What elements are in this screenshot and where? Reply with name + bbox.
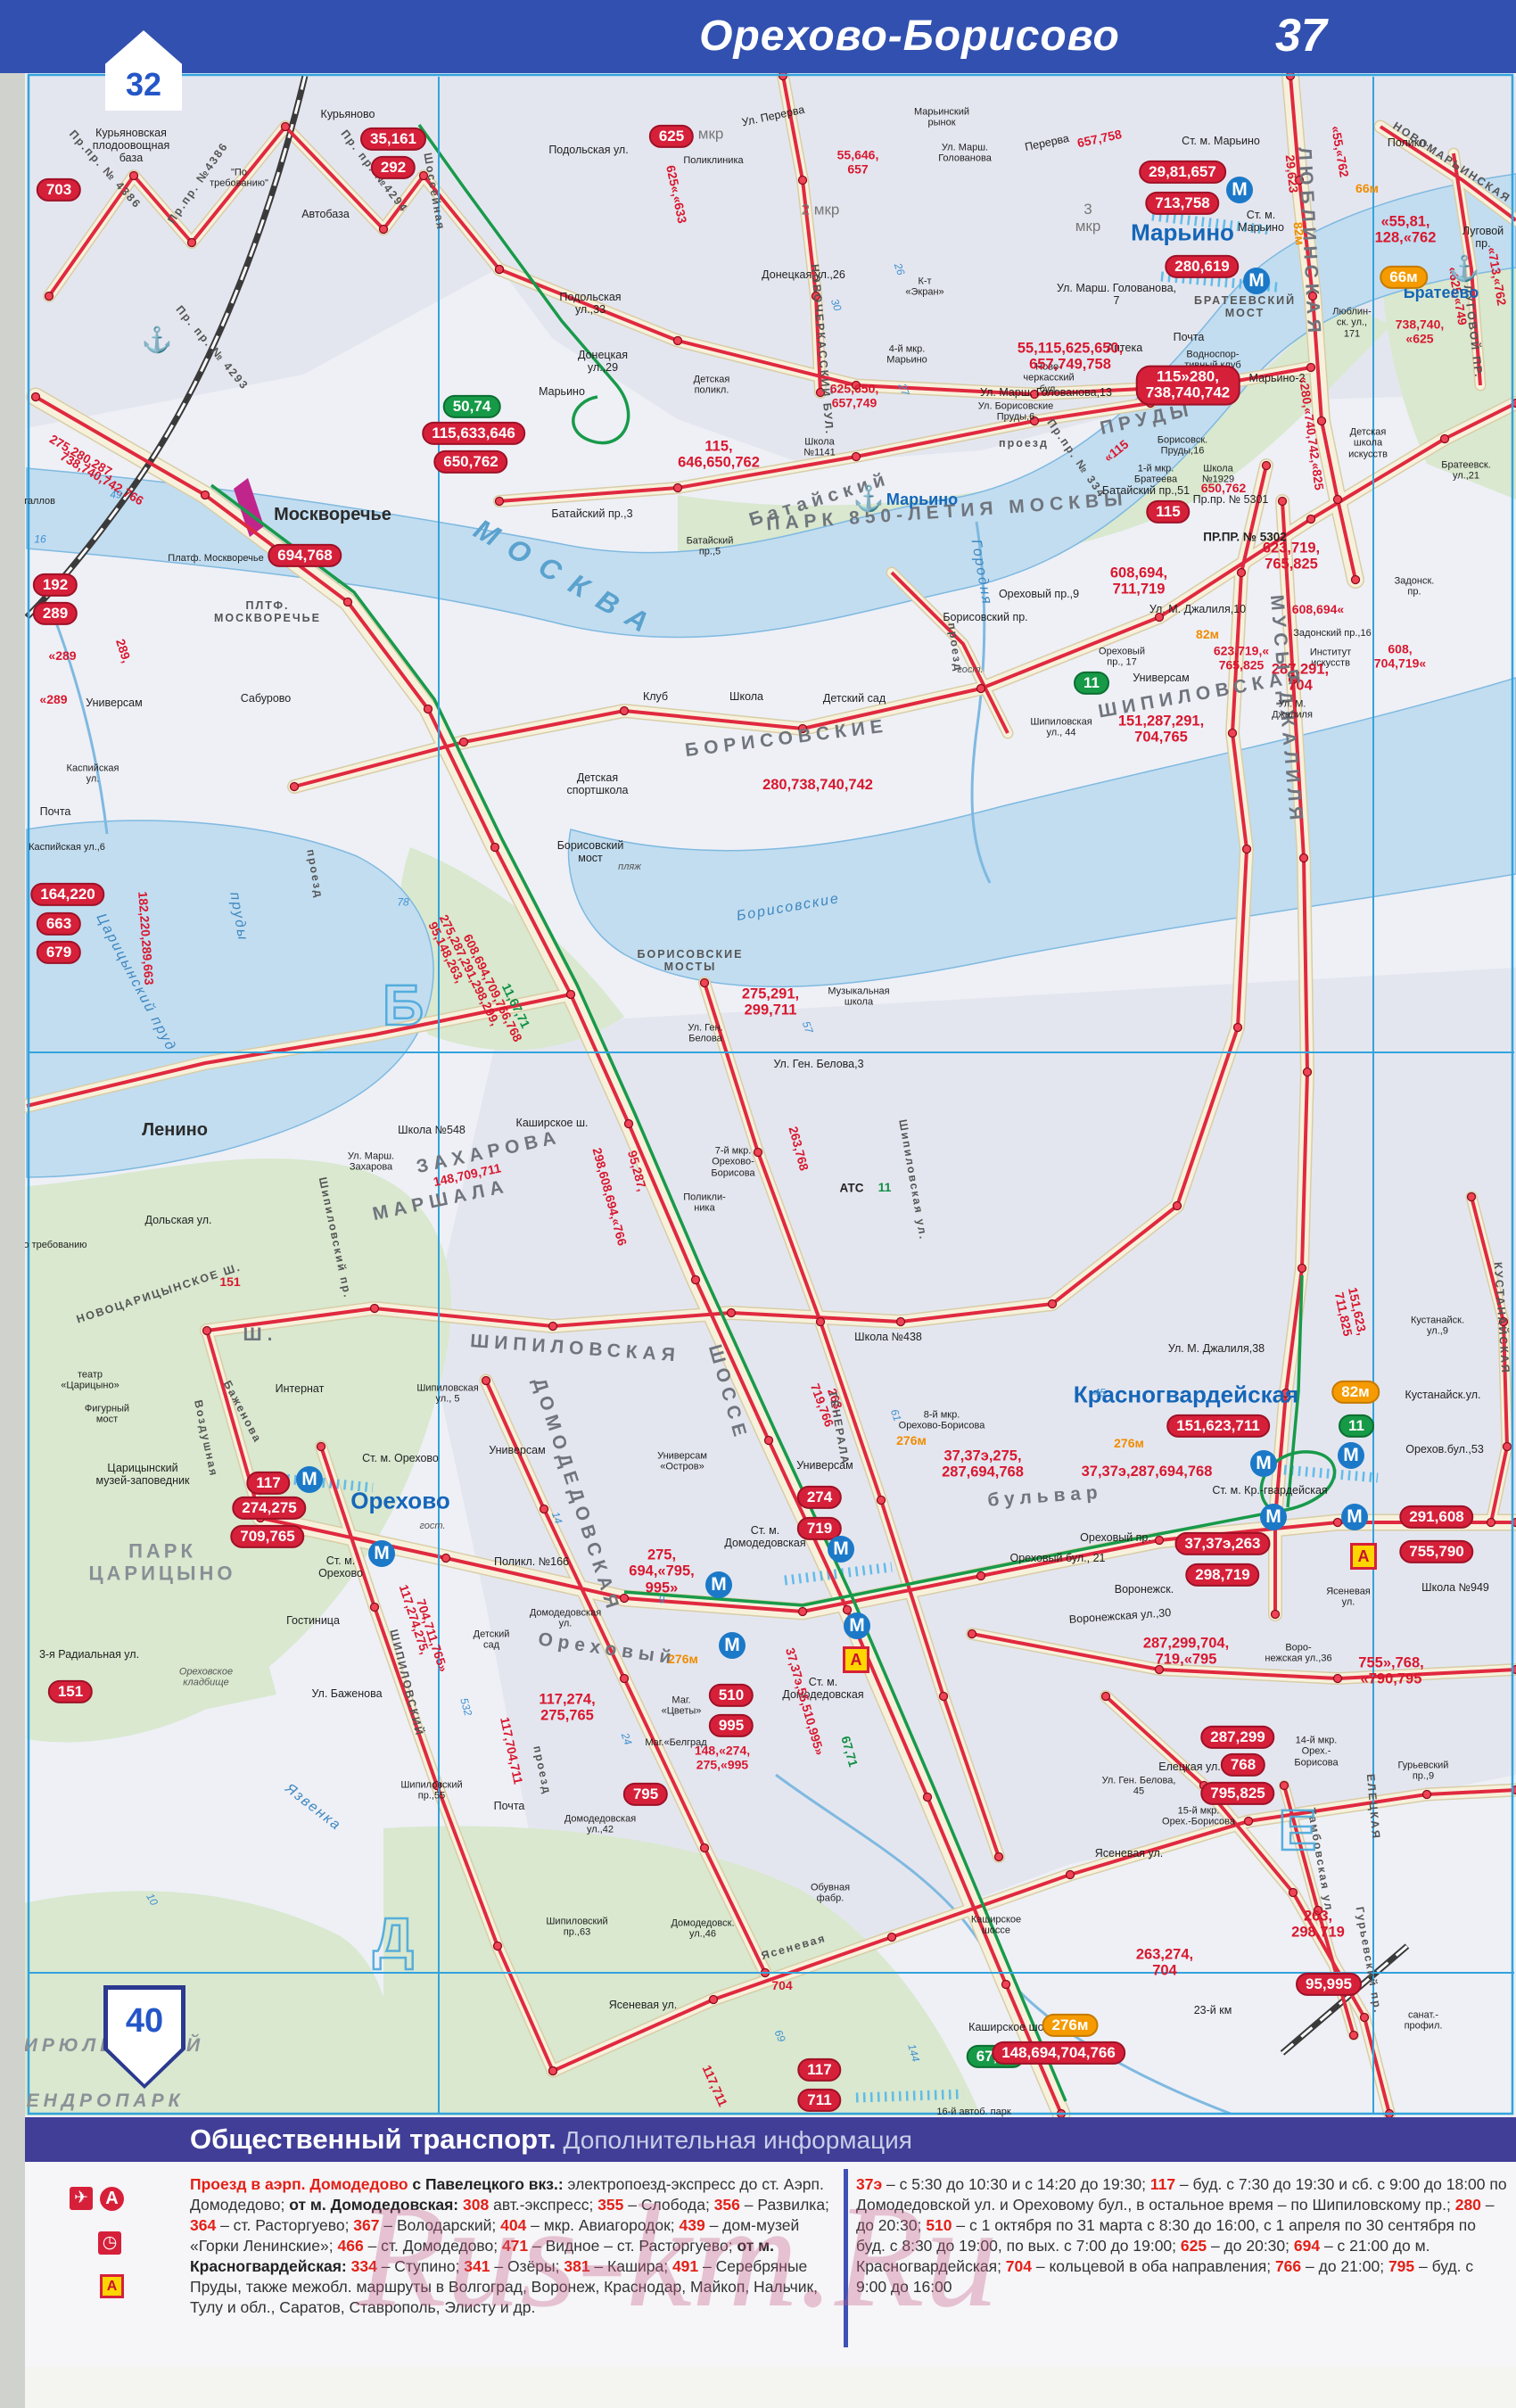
metro-station-icon: М bbox=[368, 1540, 395, 1567]
grid-letter: Б bbox=[383, 972, 424, 1038]
map-label: 37,37э,287,694,768 bbox=[1082, 1464, 1213, 1480]
grid-letter: Е bbox=[1279, 1797, 1317, 1863]
transit-info-text: 364 bbox=[190, 2216, 216, 2234]
route-badge: 291,608 bbox=[1399, 1505, 1473, 1529]
transit-info-text: 766 bbox=[1275, 2257, 1301, 2275]
map-label: 45 bbox=[1093, 1387, 1105, 1398]
map-label: Школа №949 bbox=[1421, 1581, 1489, 1594]
map-label: Задонск. пр. bbox=[1395, 576, 1435, 598]
metro-station-icon: М bbox=[1260, 1504, 1287, 1530]
map-label: Ореховый пр., 17 bbox=[1099, 647, 1145, 669]
map-label: Красногвардейская bbox=[1074, 1381, 1298, 1407]
map-label: "По требованию" bbox=[210, 168, 268, 190]
map-label: Ясеневая ул. bbox=[609, 1999, 678, 2011]
route-badge: 289 bbox=[33, 602, 78, 625]
map-label: 2 мкр bbox=[802, 201, 840, 218]
map-label: Ясеневая ул. bbox=[1326, 1587, 1371, 1609]
route-badge: 663 bbox=[37, 912, 81, 936]
transit-info-text: – Ступино; bbox=[377, 2257, 464, 2275]
transit-info-text: – Видное – ст. Расторгуево; bbox=[528, 2237, 737, 2255]
page-header: Орехово-Борисово 37 bbox=[0, 0, 1516, 73]
map-label: «55,81, 128,«762 bbox=[1375, 214, 1437, 247]
route-badge: 713,758 bbox=[1145, 192, 1219, 215]
transit-info-text: 308 bbox=[463, 2196, 489, 2214]
map-label: Орехов.бул.,53 bbox=[1405, 1443, 1484, 1456]
map-label: Братеевск. ул.,21 bbox=[1441, 460, 1490, 482]
map-label: 276м bbox=[1114, 1437, 1144, 1451]
map-label: Платф. Москворечье bbox=[168, 553, 263, 564]
map-label: проезд bbox=[999, 437, 1049, 449]
map-label: Фигурный мост bbox=[85, 1404, 129, 1426]
map-label: АТС bbox=[839, 1181, 863, 1194]
map-label: 608, 704,719« bbox=[1374, 642, 1426, 670]
route-badge: 679 bbox=[37, 941, 81, 964]
transit-info-text: 355 bbox=[597, 2196, 623, 2214]
map-label: Воро- нежская ул.,36 bbox=[1265, 1643, 1331, 1665]
map-label: Дольская ул. bbox=[144, 1214, 211, 1226]
map-label: 14-й мкр. Орех.- Борисова bbox=[1294, 1736, 1338, 1769]
clock-icon: ◷ bbox=[98, 2231, 121, 2255]
route-badge: 37,37э,263 bbox=[1174, 1532, 1270, 1555]
route-badge: 287,299 bbox=[1200, 1726, 1274, 1749]
map-label: Шипиловская ул., 44 bbox=[1030, 717, 1092, 739]
map-label: Батайский пр.,5 bbox=[687, 536, 734, 558]
transit-info-text: – кольцевой в оба направления; bbox=[1032, 2257, 1275, 2275]
metro-station-icon: М bbox=[844, 1612, 870, 1639]
map-label: 263, 298,719 bbox=[1291, 1909, 1345, 1942]
transit-info-text: 404 bbox=[500, 2216, 526, 2234]
page-title: Орехово-Борисово bbox=[571, 7, 1248, 66]
route-badge: 192 bbox=[33, 573, 78, 597]
transit-info-text: – Развилка; bbox=[740, 2196, 829, 2214]
map-label: Детская спортшкола bbox=[567, 771, 629, 796]
map-label: гост. bbox=[957, 664, 983, 675]
map-label: 37,37э,275, 287,694,768 bbox=[942, 1448, 1024, 1481]
map-label: 11 bbox=[878, 1181, 892, 1195]
map-label: Поликли- ника bbox=[683, 1192, 726, 1215]
map-label: Гурьевский пр.,9 bbox=[1398, 1761, 1449, 1783]
map-label: БРАТЕЕВСКИЙ МОСТ bbox=[1194, 294, 1296, 319]
transit-info-left-column: Проезд в аэрп. Домодедово с Павелецкого … bbox=[190, 2174, 845, 2318]
map-label: Ул. М. Джалиля,10 bbox=[1149, 603, 1246, 615]
transit-info-text: – Кашира; bbox=[590, 2257, 672, 2275]
map-label: Школа №438 bbox=[854, 1331, 922, 1343]
map-label: ПАРК ЦАРИЦЫНО bbox=[88, 1540, 235, 1584]
transit-info-text: – Володарский; bbox=[380, 2216, 501, 2234]
route-badge: 151,623,711 bbox=[1166, 1414, 1270, 1438]
map-label: 16 bbox=[34, 533, 45, 545]
map-label: 608,694, 711,719 bbox=[1110, 565, 1167, 598]
route-badge: 117 bbox=[246, 1472, 290, 1495]
map-label: Универсам bbox=[86, 697, 142, 709]
route-badge: 795,825 bbox=[1200, 1782, 1274, 1805]
route-badge: 35,161 bbox=[360, 128, 426, 151]
transit-info-text: 117 bbox=[1150, 2175, 1175, 2193]
map-label: Шипиловская ул., 5 bbox=[416, 1383, 478, 1406]
transit-info-text: – ст. Домодедово; bbox=[364, 2237, 502, 2255]
map-label: Ореховый бул., 21 bbox=[1010, 1552, 1106, 1564]
transit-info-text: 625 bbox=[1181, 2237, 1207, 2255]
map-label: Ул. Борисовские Пруды,6 bbox=[978, 401, 1053, 424]
map-label: Гостиница bbox=[286, 1614, 340, 1627]
map-label: Школа №1929 bbox=[1202, 464, 1234, 486]
metro-station-icon: М bbox=[1341, 1504, 1368, 1530]
map-label: Шипиловский пр.,63 bbox=[546, 1917, 607, 1939]
bus-terminal-icon: А bbox=[1350, 1543, 1377, 1570]
map-label: 275, 694,«795, 995» bbox=[629, 1546, 694, 1596]
route-badge: 703 bbox=[37, 178, 81, 202]
transit-info-text: 341 bbox=[464, 2257, 490, 2275]
transit-info-text: 381 bbox=[564, 2257, 589, 2275]
map-label: Клуб bbox=[643, 690, 668, 703]
map-label: пляж bbox=[618, 862, 641, 872]
map-label: Ул. Ген. Белова,3 bbox=[773, 1058, 863, 1070]
map-label: 275,291, 299,711 bbox=[742, 986, 799, 1019]
route-badge: 795 bbox=[623, 1783, 668, 1806]
map-label: Ул. Ген. Белова bbox=[688, 1023, 722, 1045]
map-label: ДЕНДРОПАРК bbox=[8, 2091, 184, 2112]
transit-info-text: – Слобода; bbox=[623, 2196, 713, 2214]
route-badge: 510 bbox=[709, 1684, 754, 1707]
route-badge: 625 bbox=[649, 125, 694, 148]
map-label: 704 bbox=[771, 1979, 792, 1993]
adjacent-page-number-bottom: 40 bbox=[108, 2002, 181, 2041]
transit-info-text: – до 20:30; bbox=[1207, 2237, 1294, 2255]
map-label: Маг. «Цветы» bbox=[662, 1695, 702, 1718]
airplane-icon: ✈ bbox=[70, 2187, 93, 2210]
map-label: 608,694« bbox=[1292, 603, 1344, 617]
route-badge: 768 bbox=[1221, 1753, 1265, 1777]
map-label: 623,719, 765,825 bbox=[1263, 540, 1320, 573]
page-left-margin bbox=[0, 0, 25, 2408]
map-label: Воронежск. bbox=[1115, 1583, 1174, 1596]
route-badge: 117 bbox=[797, 2058, 841, 2082]
map-label: Музыкальная школа bbox=[828, 986, 889, 1009]
transit-info-text: 466 bbox=[338, 2237, 364, 2255]
metro-station-icon: М bbox=[1338, 1442, 1364, 1469]
map-label: Интернат bbox=[276, 1382, 325, 1395]
map-label: Орехово bbox=[350, 1488, 449, 1513]
map-label: 15-й мкр. Орех.-Борисова bbox=[1162, 1806, 1235, 1828]
route-badge: 82м bbox=[1331, 1381, 1380, 1404]
map-label: Школа №548 bbox=[398, 1124, 466, 1136]
map-label: Ясеневая ул. bbox=[1095, 1847, 1164, 1860]
transit-info-subtitle: Дополнительная информация bbox=[556, 2126, 912, 2154]
map-label: санат.- профил. bbox=[1405, 2010, 1443, 2033]
transit-info-text: 491 bbox=[672, 2257, 698, 2275]
route-badge: 995 bbox=[709, 1714, 754, 1737]
route-badge: 292 bbox=[371, 156, 416, 179]
map-label: Подольская ул.,33 bbox=[559, 291, 621, 316]
map-label: Каширское шоссе bbox=[971, 1915, 1021, 1937]
route-badge: 274,275 bbox=[232, 1497, 306, 1520]
map-label: Подольская ул. bbox=[548, 144, 628, 156]
map-label: 23-й км bbox=[1194, 2004, 1232, 2016]
map-label: 7-й мкр. Орехово- Борисова bbox=[711, 1146, 754, 1179]
metro-station-icon: М bbox=[1243, 268, 1270, 294]
transit-info-text: – ст. Расторгуево; bbox=[216, 2216, 353, 2234]
map-label: 151,287,291, 704,765 bbox=[1118, 713, 1204, 746]
map-label: Автобаза bbox=[301, 208, 350, 220]
map-label: Царицынский музей-заповедник bbox=[96, 1462, 190, 1487]
route-badge: 694,768 bbox=[268, 544, 342, 567]
column-divider bbox=[844, 2169, 848, 2347]
transit-info-title: Общественный транспорт. bbox=[190, 2123, 556, 2155]
route-badge: 298,719 bbox=[1185, 1563, 1259, 1587]
transit-info-text: 367 bbox=[353, 2216, 379, 2234]
map-label: Борисовский мост bbox=[557, 839, 624, 864]
route-badge: 164,220 bbox=[30, 883, 104, 906]
transit-info-text: – до 21:00; bbox=[1301, 2257, 1388, 2275]
map-label: Школа bbox=[729, 690, 763, 703]
map-label: 82м bbox=[1196, 628, 1219, 642]
map-label: Донецкая ул.,29 bbox=[578, 349, 628, 374]
map-label: 55,115,625,650, 657,749,758 bbox=[1018, 341, 1123, 374]
map-label: 287,299,704, 719,«795 bbox=[1143, 1636, 1229, 1669]
map-label: 9 bbox=[659, 1594, 665, 1605]
map-label: Почта bbox=[40, 805, 71, 818]
route-badge: 11 bbox=[1339, 1414, 1374, 1438]
map-label: Сабурово bbox=[241, 692, 291, 705]
map-label: Ст. м. Домодедовская bbox=[724, 1524, 805, 1549]
map-label: 55,646, 657 bbox=[837, 148, 879, 176]
route-badge: 50,74 bbox=[443, 395, 501, 418]
map-label: Ул. Марш. Захарова bbox=[348, 1151, 394, 1174]
map-label: Ст. м. Кр.-гвардейская bbox=[1212, 1484, 1327, 1497]
route-badge: 115 bbox=[1146, 500, 1190, 524]
transit-info-text: – с 5:30 до 10:30 и с 14:20 до 19:30; bbox=[882, 2175, 1150, 2193]
map-label: Домодедовская ул.,42 bbox=[564, 1814, 636, 1836]
map-label: Ш. bbox=[243, 1324, 278, 1346]
map-label: 29,623 bbox=[1282, 154, 1300, 194]
transit-info-text: 694 bbox=[1294, 2237, 1320, 2255]
map-label: Ст. м. Марьино bbox=[1182, 135, 1260, 147]
map-label: Детская школа искусств bbox=[1348, 427, 1388, 460]
map-label: Задонский пр.,16 bbox=[1293, 628, 1371, 639]
map-label: 280,738,740,742 bbox=[762, 777, 873, 793]
map-label: Марьино bbox=[886, 491, 958, 508]
map-label: Ореховское кладбище bbox=[179, 1667, 233, 1689]
map-label: Марьино bbox=[1131, 219, 1234, 245]
map-label: Каспийская ул.,6 bbox=[29, 842, 105, 853]
map-label: Детская поликл. bbox=[694, 375, 730, 397]
map-label: Ул. Ген. Белова, 45 bbox=[1102, 1776, 1176, 1798]
map-label: Елецкая ул. bbox=[1158, 1761, 1220, 1773]
map-label: Универсам «Остров» bbox=[657, 1451, 707, 1473]
transit-info-text: 471 bbox=[502, 2237, 528, 2255]
transit-info-text: 510 bbox=[926, 2216, 952, 2234]
map-label: Ореховый пр.,9 bbox=[999, 588, 1079, 600]
map-label: 117,274, 275,765 bbox=[539, 1692, 595, 1725]
map-label: Поликл. №166 bbox=[494, 1555, 569, 1568]
map-label: Москворечье bbox=[274, 505, 391, 524]
map-label: 263,274, 704 bbox=[1136, 1947, 1193, 1980]
bus-terminal-a-icon: А bbox=[100, 2187, 124, 2211]
route-badge: 115»280, 738,740,742 bbox=[1136, 366, 1240, 406]
map-label: Почта bbox=[1174, 331, 1205, 343]
transit-info-text: 439 bbox=[680, 2216, 705, 2234]
map-label: 4-й мкр. Марьино bbox=[886, 344, 927, 367]
metro-station-icon: М bbox=[719, 1632, 746, 1659]
metro-station-icon: М bbox=[705, 1571, 732, 1598]
metro-station-icon: М bbox=[296, 1466, 323, 1493]
map-label: 78 bbox=[397, 896, 408, 908]
page-number: 37 bbox=[1275, 5, 1327, 66]
route-badge: 66м bbox=[1380, 266, 1428, 289]
map-label: 276м bbox=[896, 1434, 927, 1448]
transit-info-text: 334 bbox=[351, 2257, 377, 2275]
route-badge: 709,765 bbox=[230, 1525, 304, 1548]
map-canvas: Курьяновская плодоовощная базаПр.пр. № 4… bbox=[0, 0, 1516, 2117]
map-label: Ленино bbox=[142, 1120, 208, 1140]
map-label: Ул. М. Джалиля,38 bbox=[1168, 1342, 1265, 1355]
map-label: 66м bbox=[1355, 182, 1379, 196]
map-label: Ореховый пр. bbox=[1080, 1531, 1151, 1544]
map-label: 148,«274, 275,«995 bbox=[695, 1744, 750, 1771]
route-badge: 276м bbox=[1042, 2014, 1099, 2037]
map-label: К-т «Экран» bbox=[905, 276, 943, 299]
map-label: Каспийская ул. bbox=[67, 763, 119, 786]
route-badge: 29,81,657 bbox=[1139, 161, 1226, 184]
route-badge: 148,694,704,766 bbox=[992, 2041, 1125, 2065]
map-label: Обувная фабр. bbox=[811, 1883, 850, 1905]
map-label: театр «Царицыно» bbox=[61, 1370, 119, 1392]
map-label: Донецкая ул.,26 bbox=[762, 268, 845, 281]
transit-info-text: 704 bbox=[1006, 2257, 1032, 2275]
map-label: Шипиловский пр.,55 bbox=[400, 1780, 462, 1802]
map-label: Универсам bbox=[489, 1444, 545, 1456]
map-label: Батайский пр.,3 bbox=[551, 507, 632, 520]
map-label: Детский сад bbox=[823, 692, 886, 705]
transit-info-text: от м. Домодедовская: bbox=[289, 2196, 458, 2214]
map-label: ПЛТФ. МОСКВОРЕЧЬЕ bbox=[214, 599, 321, 624]
map-label: Домодедовск. ул.,46 bbox=[671, 1918, 734, 1941]
atlas-page: { "header":{"page_left":"32","title":"Ор… bbox=[0, 0, 1516, 2408]
map-label: Кустанайск.ул. bbox=[1405, 1389, 1481, 1401]
route-badge: 711 bbox=[797, 2089, 841, 2112]
route-badge: 11 bbox=[1074, 672, 1109, 695]
transit-info-text: 280 bbox=[1455, 2196, 1481, 2214]
transit-info-text: – Озёры; bbox=[490, 2257, 564, 2275]
transit-info-bar: Общественный транспорт. Дополнительная и… bbox=[25, 2117, 1516, 2162]
map-label: 3-я Радиальная ул. bbox=[39, 1648, 139, 1661]
map-label: Поликлиника bbox=[683, 155, 743, 166]
map-label: «289 bbox=[39, 693, 67, 707]
transit-info-body: ✈ А ◷ А Проезд в аэрп. Домодедово с Паве… bbox=[25, 2162, 1516, 2367]
map-label: Ул. Марш. Голованова, 7 bbox=[1057, 282, 1176, 307]
map-label: 755»,768, «790,795 bbox=[1358, 1655, 1423, 1688]
map-label: Курьяново bbox=[321, 108, 375, 120]
map-label: По требованию bbox=[17, 1240, 87, 1250]
transit-info-text: 795 bbox=[1388, 2257, 1414, 2275]
map-label: 16-й автоб. парк bbox=[936, 2107, 1010, 2117]
route-badge: 280,619 bbox=[1165, 255, 1239, 278]
bus-terminal-icon: А bbox=[843, 1646, 869, 1673]
transit-info-text: 356 bbox=[714, 2196, 740, 2214]
map-label: Ст. м. Марьино bbox=[1238, 209, 1284, 234]
map-label: Люблин- ск. ул., 171 bbox=[1332, 307, 1372, 340]
map-label: 625,650, 657,749 bbox=[830, 382, 879, 409]
map-label: Домодедовская ул. bbox=[530, 1608, 601, 1630]
map-label: 49 bbox=[110, 489, 121, 500]
route-a-icon: А bbox=[100, 2274, 124, 2298]
map-label: 8-й мкр. Орехово-Борисова bbox=[899, 1410, 985, 1432]
route-badge: 650,762 bbox=[433, 450, 507, 474]
map-label: Ст. м. Орехово bbox=[318, 1554, 363, 1579]
map-label: Ул. М. Джалиля bbox=[1272, 699, 1313, 722]
map-label: Почта bbox=[494, 1800, 525, 1812]
route-badge: 274 bbox=[797, 1486, 842, 1509]
transit-info-text: Проезд в аэрп. Домодедово bbox=[190, 2175, 408, 2193]
map-label: Кустанайск. ул.,9 bbox=[1411, 1315, 1464, 1338]
transit-info-text: с Павелецкого вкз.: bbox=[408, 2175, 564, 2193]
map-label: «289 bbox=[48, 649, 76, 664]
map-label: гост. bbox=[419, 1521, 445, 1531]
route-badge: 95,995 bbox=[1296, 1973, 1362, 1996]
route-badge: 151 bbox=[48, 1680, 93, 1703]
map-label: Пр.пр. № 5301 bbox=[1193, 493, 1269, 506]
map-label: Борисовск. Пруды,16 bbox=[1158, 435, 1207, 458]
map-label: 276м bbox=[668, 1653, 698, 1667]
map-label: Ул. Марш. Голованова bbox=[938, 143, 992, 165]
transit-info-text: авт.-экспресс; bbox=[489, 2196, 597, 2214]
map-label: Универсам bbox=[1133, 672, 1189, 684]
map-label: Ст. м. Орехово bbox=[362, 1452, 439, 1464]
map-label: 623,719,« 765,825 bbox=[1214, 644, 1269, 672]
pier-anchor-icon: ⚓ bbox=[853, 484, 885, 514]
metro-station-icon: М bbox=[1250, 1450, 1277, 1477]
map-label: 82м bbox=[1290, 221, 1306, 245]
map-label: таллов bbox=[23, 496, 55, 507]
pier-anchor-icon: ⚓ bbox=[1449, 254, 1480, 284]
map-label: 3 мкр bbox=[1075, 201, 1101, 235]
route-badge: 755,790 bbox=[1399, 1540, 1473, 1563]
map-label: 738,740, «625 bbox=[1396, 317, 1445, 345]
map-label: Марьинский рынок bbox=[914, 107, 969, 129]
map-label: 1-й мкр. Братеева bbox=[1134, 464, 1177, 486]
transit-info-text: 37э bbox=[856, 2175, 882, 2193]
transit-info-right-column: 37э – с 5:30 до 10:30 и с 14:20 до 19:30… bbox=[856, 2174, 1507, 2297]
map-label: Ул. Баженова bbox=[311, 1687, 382, 1700]
map-label: 115, 646,650,762 bbox=[678, 439, 760, 472]
metro-station-icon: М bbox=[828, 1536, 854, 1563]
pier-anchor-icon: ⚓ bbox=[142, 326, 173, 355]
grid-letter: Д bbox=[373, 1905, 414, 1971]
map-label: БОРИСОВСКИЕ МОСТЫ bbox=[638, 948, 744, 973]
map-label: Марьино bbox=[539, 385, 585, 398]
route-badge: 115,633,646 bbox=[422, 422, 525, 445]
adjacent-page-number: 32 bbox=[105, 66, 182, 103]
transit-info-text: – мкр. Авиагородок; bbox=[526, 2216, 679, 2234]
metro-station-icon: М bbox=[1226, 177, 1253, 203]
map-label: Детский сад bbox=[474, 1629, 510, 1652]
map-label: Школа №1141 bbox=[803, 437, 835, 459]
